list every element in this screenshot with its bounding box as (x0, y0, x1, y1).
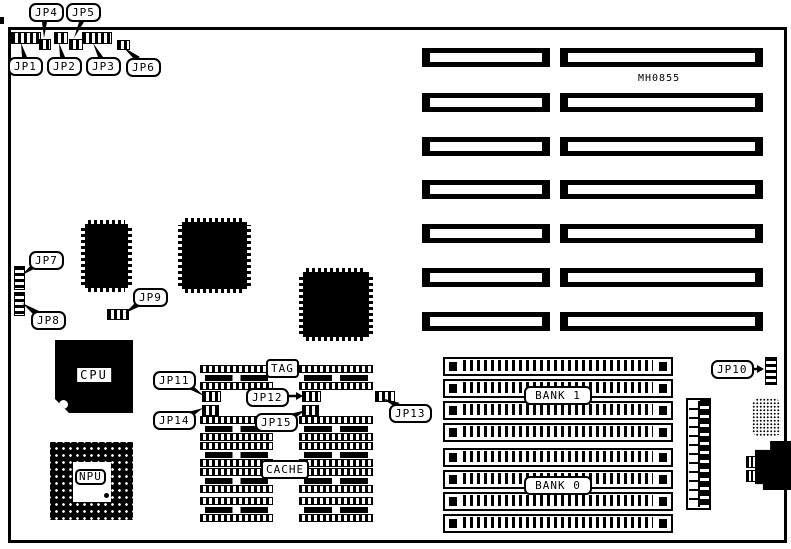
jumper-block-jp8 (14, 292, 25, 316)
dip-chip (200, 365, 273, 390)
cpu-label: CPU (75, 366, 113, 384)
jumper-block-jp12 (302, 391, 321, 402)
isa-slot (560, 268, 763, 287)
keyboard-pin-header (746, 470, 757, 482)
isa-slot (560, 93, 763, 112)
dip-chip (299, 365, 373, 390)
callout-jp9: JP9 (133, 288, 168, 307)
callout-jp13: JP13 (389, 404, 432, 423)
simm-slot (443, 357, 673, 376)
jumper-block-jp1 (11, 32, 41, 44)
jumper-block-jp10 (765, 357, 777, 385)
isa-slot (422, 180, 550, 199)
isa-slot (560, 224, 763, 243)
simm-slot (443, 448, 673, 467)
isa-slot (422, 224, 550, 243)
isa-slot (422, 137, 550, 156)
dip-chip (299, 442, 373, 467)
jumper-block-jp6 (117, 40, 130, 50)
jumper-block-jp9 (107, 309, 129, 320)
power-connector (686, 398, 711, 510)
callout-jp15: JP15 (255, 413, 298, 432)
npu-label: NPU (75, 469, 106, 485)
callout-jp12: JP12 (246, 388, 289, 407)
part-number-label: MH0855 (638, 73, 680, 84)
dip-chip (299, 468, 373, 493)
isa-slot (560, 48, 763, 67)
tag-label: TAG (266, 359, 299, 378)
qfp-chip (303, 272, 369, 337)
jumper-block-jp14 (202, 405, 219, 416)
isa-slot (560, 137, 763, 156)
jumper-block-jp3 (82, 32, 112, 44)
board-edge-tick (0, 17, 4, 24)
npu-socket: NPU (50, 442, 133, 520)
callout-jp5: JP5 (66, 3, 101, 22)
fuse-component (752, 398, 781, 437)
isa-slot (560, 312, 763, 331)
dip-chip (299, 497, 373, 522)
callout-jp7: JP7 (29, 251, 64, 270)
callout-jp11: JP11 (153, 371, 196, 390)
keyboard-pin-header (746, 456, 757, 468)
callout-jp8: JP8 (31, 311, 66, 330)
isa-slot (422, 48, 550, 67)
isa-slot (422, 312, 550, 331)
jumper-block-jp5 (69, 39, 83, 50)
jumper-block-jp11 (202, 391, 221, 402)
jumper-block-jp7 (14, 266, 25, 290)
cpu-chip: CPU (55, 340, 133, 413)
dip-chip (299, 416, 373, 441)
npu-pin1-dot (104, 493, 109, 498)
jumper-block-jp4 (39, 39, 51, 50)
jumper-block-jp13 (375, 391, 395, 402)
callout-jp2: JP2 (47, 57, 82, 76)
qfp-chip (182, 222, 247, 289)
callout-jp4: JP4 (29, 3, 64, 22)
callout-jp1: JP1 (8, 57, 43, 76)
callout-jp14: JP14 (153, 411, 196, 430)
isa-slot (422, 93, 550, 112)
simm-slot (443, 423, 673, 442)
jumper-block-jp15 (302, 405, 319, 416)
jumper-block-jp2 (54, 32, 68, 44)
callout-jp10: JP10 (711, 360, 754, 379)
bank0-label: BANK 0 (524, 476, 592, 495)
callout-jp3: JP3 (86, 57, 121, 76)
isa-slot (560, 180, 763, 199)
npu-socket-center: NPU (73, 462, 111, 502)
dip-chip (200, 497, 273, 522)
isa-slot (422, 268, 550, 287)
motherboard-diagram: JP4 JP5 JP1 JP2 JP3 JP6 MH0855 JP7 JP8 J… (0, 0, 791, 549)
cache-label: CACHE (261, 460, 309, 479)
callout-jp6: JP6 (126, 58, 161, 77)
bank1-label: BANK 1 (524, 386, 592, 405)
qfp-chip (85, 224, 128, 288)
simm-slot (443, 514, 673, 533)
